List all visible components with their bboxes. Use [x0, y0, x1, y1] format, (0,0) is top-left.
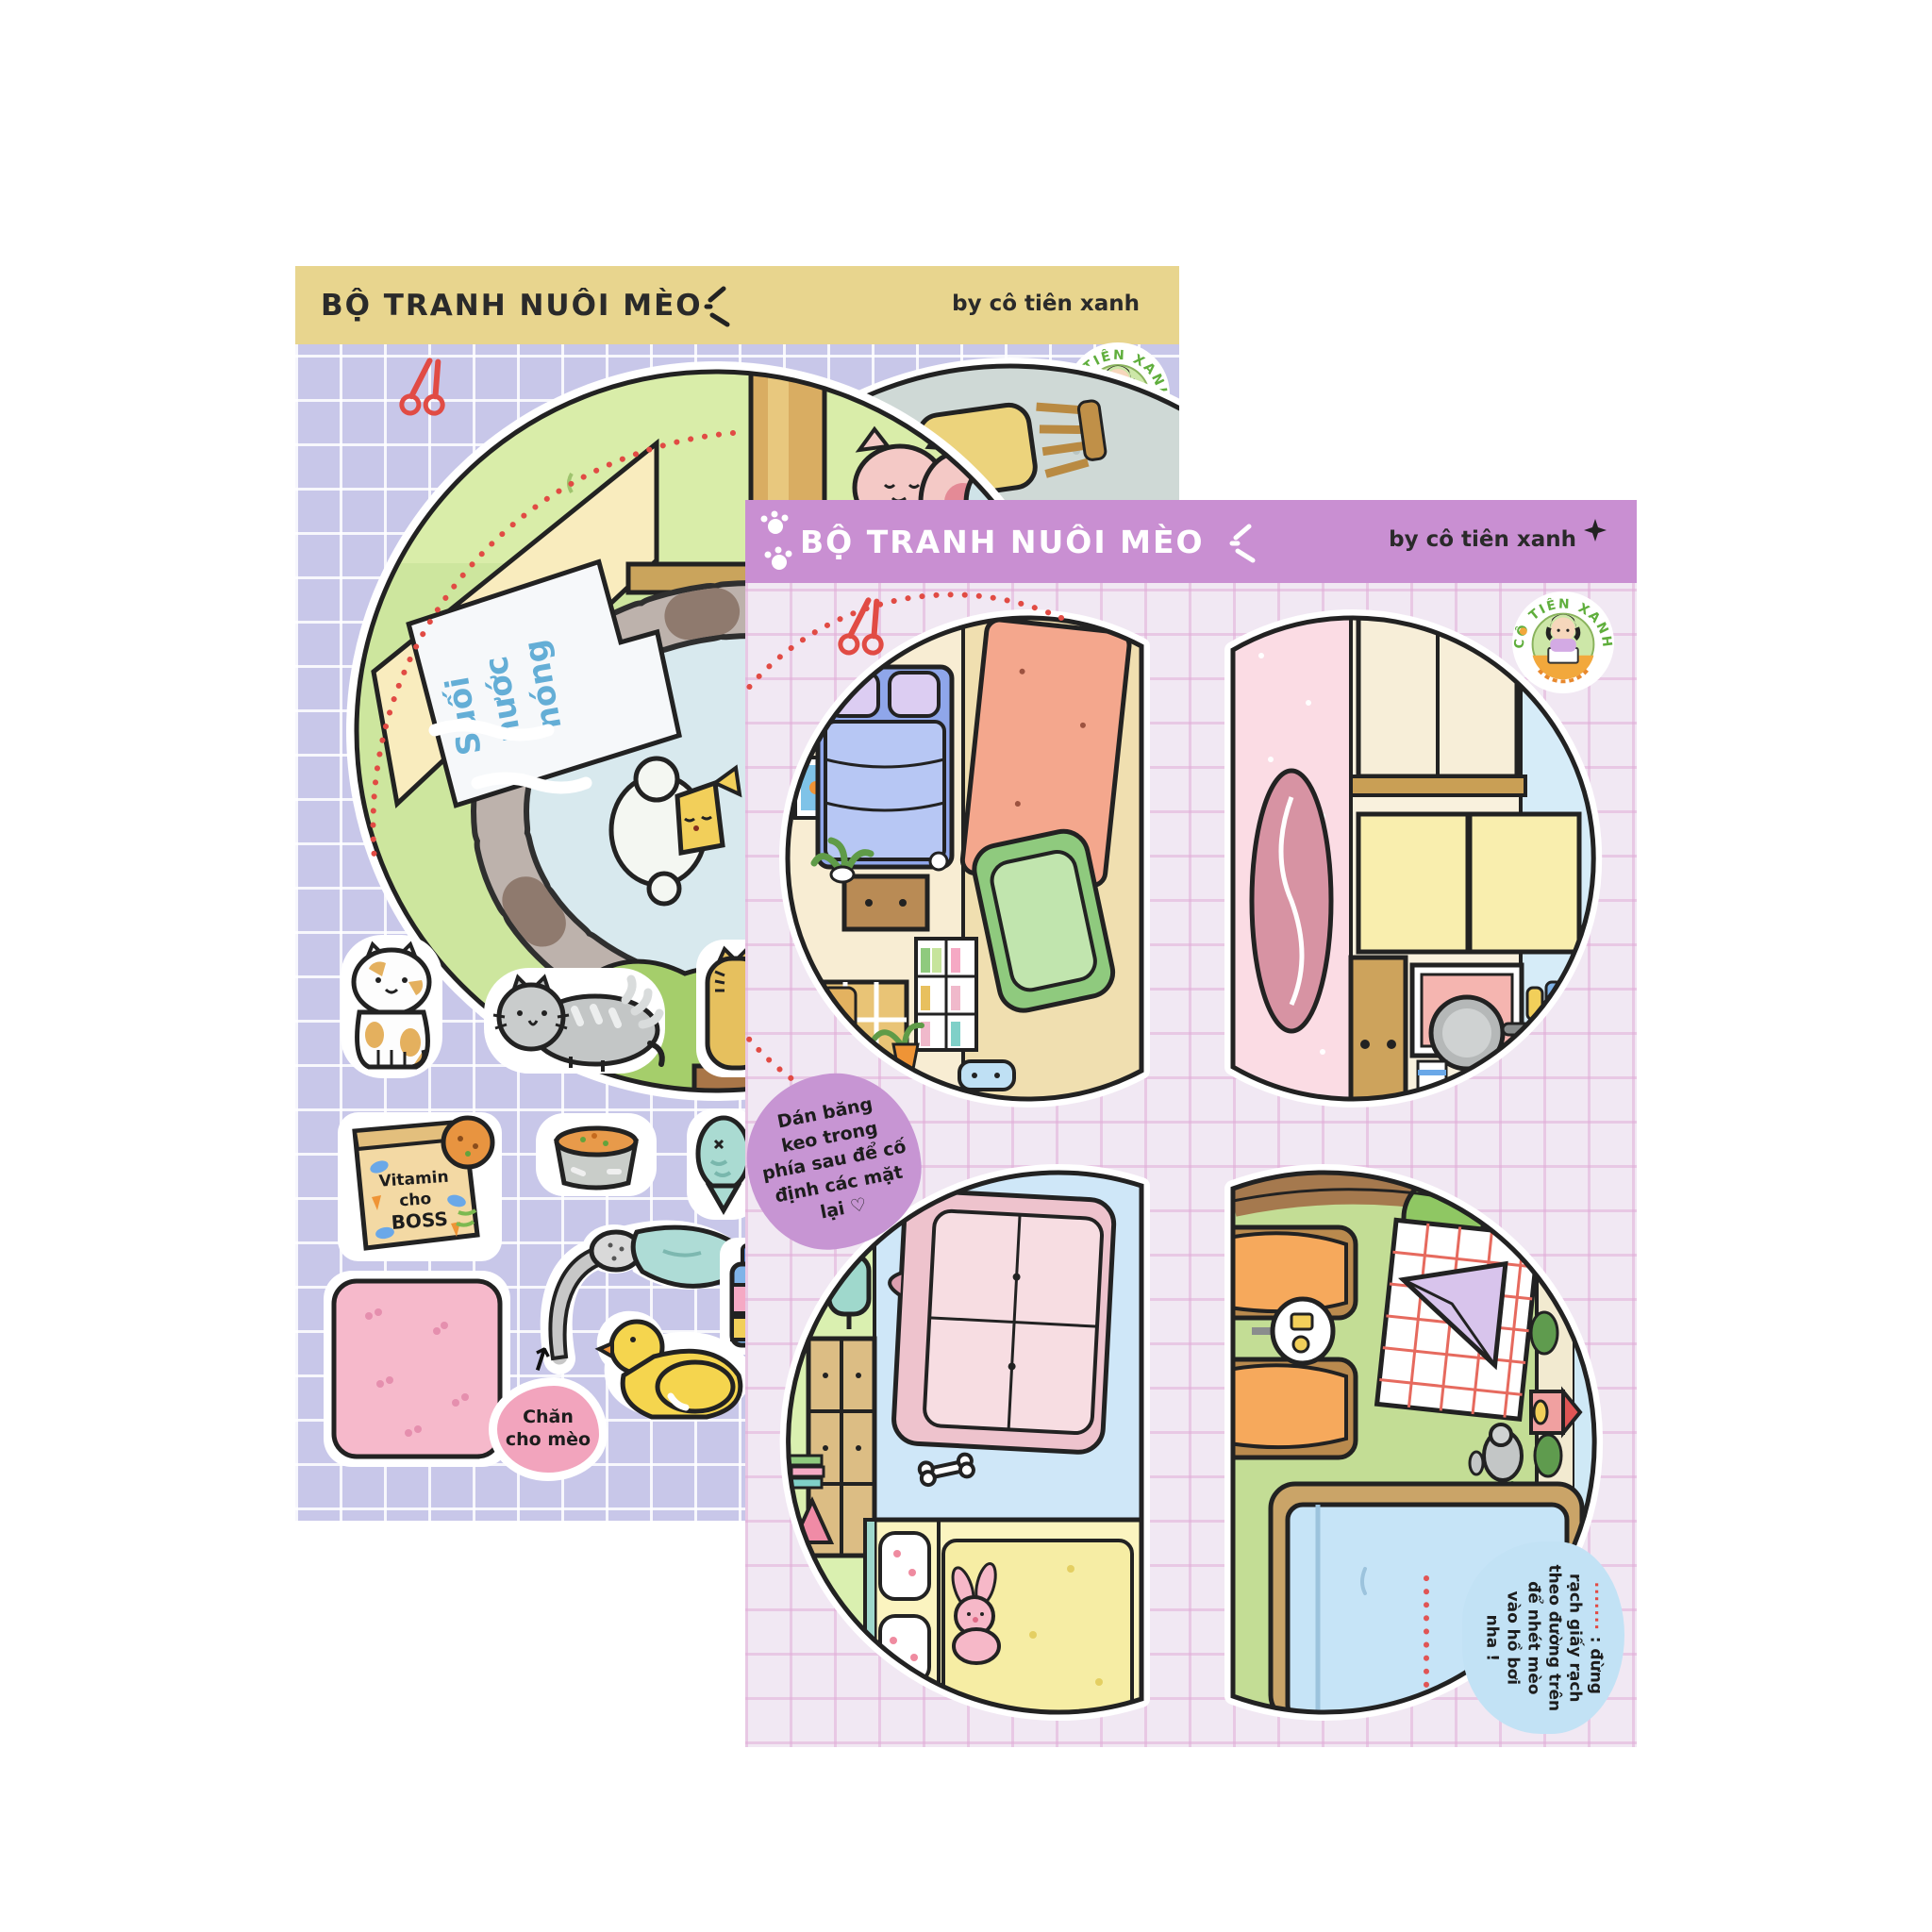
- sticker-vitamin-bag: Vitamin cho BOSS: [338, 1110, 502, 1261]
- bed: [874, 1520, 1148, 1712]
- whisker-doodle-icon: [701, 285, 739, 328]
- whisker-doodle-icon: [1228, 523, 1262, 564]
- blanket-label: Chăn cho mèo: [489, 1377, 608, 1481]
- tape-note-text: Dán băng keo trong phía sau để cố định c…: [751, 1088, 917, 1234]
- panel-kitchen: [1233, 618, 1594, 1099]
- sticker-gray-cat: [484, 962, 665, 1077]
- sticker-calico-cat: [341, 931, 442, 1080]
- panel-bedroom: [788, 618, 1141, 1099]
- stove: [1412, 965, 1535, 1069]
- sheet-yellow-header: BỘ TRANH NUÔI MÈO by cô tiên xanh: [295, 266, 1179, 344]
- utensil-tray: [1522, 1044, 1580, 1076]
- tables: [1358, 814, 1579, 952]
- bookshelf: [916, 939, 976, 1050]
- sticker-food-bowl: [536, 1113, 657, 1196]
- paw-prints-icon: [755, 509, 800, 575]
- cut-note-bubble: ······· : đừng rạch giấy rạch theo đường…: [1462, 1541, 1624, 1734]
- sticker-pink-blanket: [324, 1271, 510, 1467]
- bed: [818, 662, 952, 870]
- panel-living-room: [788, 1173, 1141, 1712]
- sticker-sheet-purple: BỘ TRANH NUÔI MÈO by cô tiên xanh CÔ TIÊ…: [745, 500, 1637, 1747]
- byline: by cô tiên xanh: [952, 291, 1140, 316]
- upper-cabinets: [1351, 618, 1525, 795]
- blanket-label-text: Chăn cho mèo: [506, 1407, 591, 1452]
- byline: by cô tiên xanh: [1389, 527, 1576, 552]
- sheet-title: BỘ TRANH NUÔI MÈO: [800, 524, 1205, 560]
- red-dots-legend: ·······: [1586, 1581, 1605, 1630]
- sparkle-icon: [1582, 517, 1608, 543]
- product-image: BỘ TRANH NUÔI MÈO by cô tiên xanh CÔ TIÊ…: [0, 0, 1932, 1932]
- sheet-purple-header: BỘ TRANH NUÔI MÈO by cô tiên xanh: [745, 500, 1637, 583]
- books-stack: [790, 1456, 824, 1488]
- door: [1351, 958, 1406, 1099]
- sofa: [881, 1190, 1115, 1454]
- sheet-title: BỘ TRANH NUÔI MÈO: [321, 289, 703, 323]
- cut-note-text: ······· : đừng rạch giấy rạch theo đường…: [1481, 1557, 1607, 1719]
- arrow-up-icon: ↑: [523, 1339, 559, 1383]
